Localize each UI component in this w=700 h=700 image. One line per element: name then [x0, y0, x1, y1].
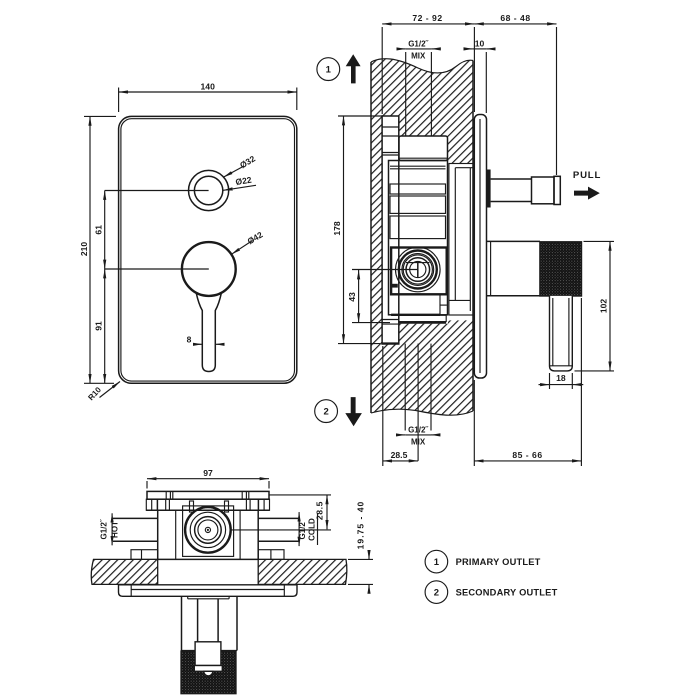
- svg-text:28.5: 28.5: [391, 450, 408, 460]
- svg-text:1: 1: [326, 65, 332, 76]
- svg-text:PULL: PULL: [573, 170, 601, 181]
- svg-text:18: 18: [556, 373, 566, 383]
- svg-text:91: 91: [94, 321, 104, 331]
- svg-text:PRIMARY OUTLET: PRIMARY OUTLET: [456, 557, 541, 567]
- svg-text:28.5: 28.5: [314, 501, 324, 520]
- svg-text:HOT: HOT: [111, 521, 120, 538]
- svg-text:MIX: MIX: [411, 51, 426, 60]
- svg-text:8: 8: [187, 335, 192, 345]
- svg-text:1: 1: [434, 557, 440, 568]
- svg-text:COLD: COLD: [308, 518, 317, 541]
- svg-text:SECONDARY OUTLET: SECONDARY OUTLET: [456, 588, 558, 598]
- svg-text:MIX: MIX: [411, 437, 426, 446]
- svg-text:G1/2˝: G1/2˝: [408, 40, 429, 49]
- svg-text:61: 61: [94, 225, 104, 235]
- svg-text:97: 97: [203, 468, 213, 478]
- svg-text:2: 2: [434, 588, 439, 599]
- svg-text:178: 178: [332, 221, 342, 236]
- svg-text:2: 2: [323, 407, 328, 418]
- svg-text:68 - 48: 68 - 48: [500, 13, 530, 23]
- svg-text:210: 210: [79, 242, 89, 257]
- svg-text:43: 43: [347, 292, 357, 302]
- svg-text:10: 10: [475, 38, 485, 48]
- svg-text:G1/2˝: G1/2˝: [298, 518, 307, 539]
- svg-text:85 - 66: 85 - 66: [512, 450, 542, 460]
- svg-text:G1/2˝: G1/2˝: [408, 426, 429, 435]
- svg-text:72 - 92: 72 - 92: [412, 13, 442, 23]
- svg-text:G1/2˝: G1/2˝: [99, 518, 108, 539]
- svg-text:19.75 - 40: 19.75 - 40: [356, 501, 366, 550]
- svg-text:140: 140: [201, 81, 216, 91]
- svg-text:102: 102: [599, 299, 609, 314]
